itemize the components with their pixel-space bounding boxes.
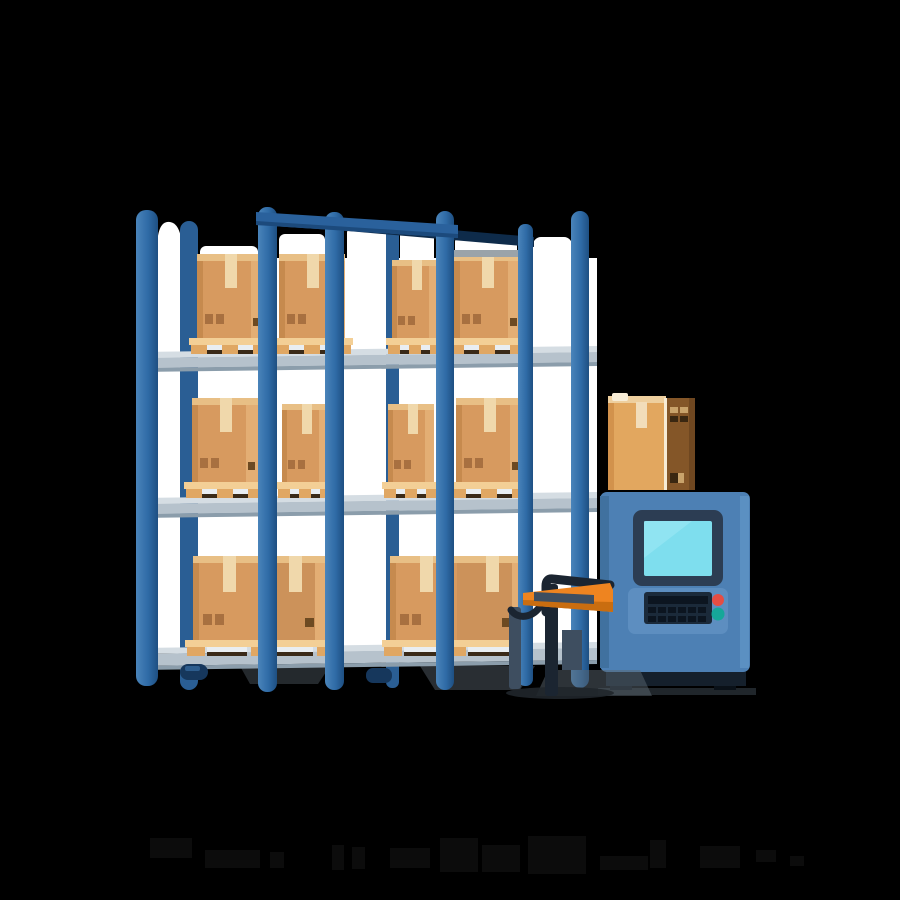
floor-shadow [240, 666, 330, 684]
carton-top-tape [612, 393, 628, 401]
kiosk-body-light [740, 496, 749, 668]
pallet-box-l2-a1 [184, 398, 266, 498]
kiosk-keypad [644, 592, 712, 624]
rack-caster [366, 668, 392, 683]
pallet-box-l2-b1 [382, 404, 440, 498]
carton-tape [636, 402, 647, 428]
warehouse-illustration [0, 0, 900, 900]
rack-post-3 [325, 212, 344, 690]
carton-on-kiosk [608, 393, 695, 490]
kiosk-red-button [712, 594, 724, 606]
kiosk-teal-button [712, 608, 725, 621]
jack-frame [562, 630, 582, 670]
rack-post-2 [258, 207, 277, 692]
rack-post-6 [571, 211, 589, 688]
pallet-box-l2-b2 [448, 398, 530, 498]
illustration-stage [0, 0, 900, 900]
pallet-box-l1-b2 [446, 254, 528, 354]
jack-shadow [506, 687, 614, 699]
backdrop-cloth [157, 222, 182, 420]
carton-corner-highlight [664, 398, 667, 490]
box-top-shadow [454, 250, 520, 257]
pallet-box-l1-b1 [386, 260, 444, 354]
carton-side-edge [689, 398, 695, 490]
carton-left-edge [608, 400, 614, 490]
rack-caster-highlight [185, 666, 200, 671]
kiosk-terminal [598, 492, 756, 695]
rack-post-4 [436, 211, 454, 690]
rack-post-1 [136, 210, 158, 686]
